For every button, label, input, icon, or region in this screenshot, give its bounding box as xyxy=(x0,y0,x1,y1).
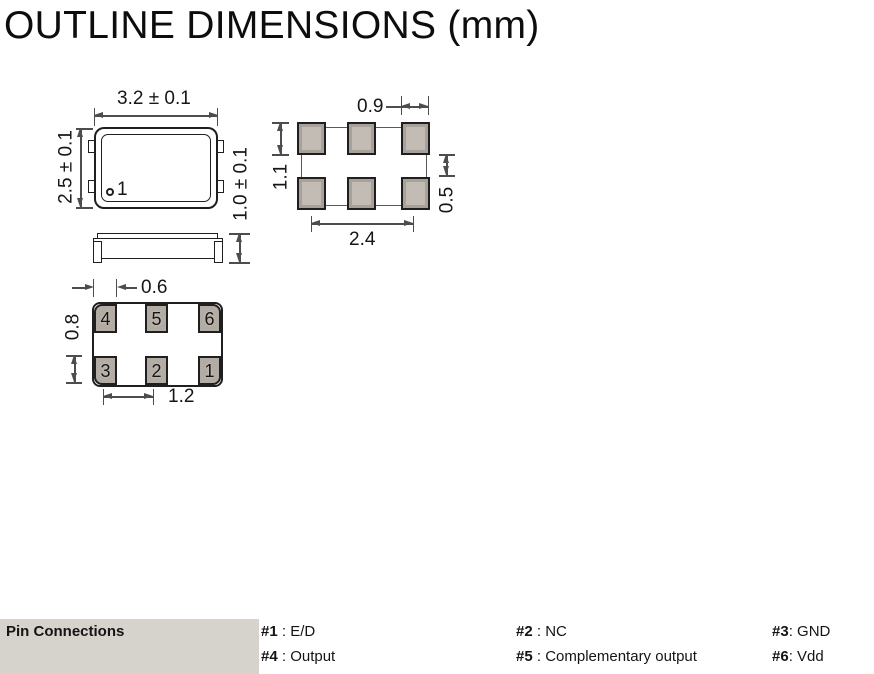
pin-pad-3: 3 xyxy=(94,356,117,385)
pin-function: : Output xyxy=(278,648,336,665)
pin-connections-label: Pin Connections xyxy=(6,623,124,640)
pin-pad-5: 5 xyxy=(145,304,168,333)
datasheet-outline-page: OUTLINE DIMENSIONS (mm) 1 3.2 ± 0.1 xyxy=(0,0,874,674)
side-view-body xyxy=(93,238,223,259)
page-title: OUTLINE DIMENSIONS (mm) xyxy=(4,4,540,48)
land-pad xyxy=(347,122,376,155)
pin-number: #4 xyxy=(261,648,278,665)
side-view-terminal xyxy=(93,241,102,263)
side-view-terminal xyxy=(214,241,223,263)
pin-function: : E/D xyxy=(278,623,316,640)
pin-number: #6 xyxy=(772,648,789,665)
land-pad xyxy=(347,177,376,210)
pin-function: : Vdd xyxy=(789,648,824,665)
pin-number: #3 xyxy=(772,623,789,640)
pin-function: : GND xyxy=(789,623,831,640)
pin-connection-entry-4: #4 : Output xyxy=(261,648,335,665)
dim-land-pad-width-label: 0.9 xyxy=(357,97,383,116)
pin-function: : NC xyxy=(533,623,567,640)
dim-body-width-label: 3.2 ± 0.1 xyxy=(117,89,191,108)
pin-pad-4: 4 xyxy=(94,304,117,333)
land-pad xyxy=(297,122,326,155)
dim-body-height-label: 2.5 ± 0.1 xyxy=(57,130,76,204)
dim-bottom-pad-height-label: 0.8 xyxy=(64,314,83,340)
dim-bottom-pad-pitch-label: 1.2 xyxy=(168,387,194,406)
land-pad xyxy=(401,177,430,210)
pin-function: : Complementary output xyxy=(533,648,697,665)
pin-connection-entry-3: #3: GND xyxy=(772,623,830,640)
dim-thickness-label: 1.0 ± 0.1 xyxy=(232,147,251,221)
pin-pad-1: 1 xyxy=(198,356,221,385)
dim-land-row-gap-label: 0.5 xyxy=(438,187,457,213)
pin-connection-entry-1: #1 : E/D xyxy=(261,623,315,640)
dim-bottom-pad-width-label: 0.6 xyxy=(141,278,167,297)
pin1-dot-icon xyxy=(106,188,114,196)
land-pad xyxy=(297,177,326,210)
pin-number: #2 xyxy=(516,623,533,640)
pin-connection-entry-2: #2 : NC xyxy=(516,623,567,640)
pin-connection-entry-5: #5 : Complementary output xyxy=(516,648,697,665)
dim-land-pad-height-label: 1.1 xyxy=(272,164,291,190)
dim-land-span-label: 2.4 xyxy=(349,230,375,249)
pin1-marker-label: 1 xyxy=(117,180,128,199)
land-pad xyxy=(401,122,430,155)
pin-number: #5 xyxy=(516,648,533,665)
pin-pad-6: 6 xyxy=(198,304,221,333)
pin-number: #1 xyxy=(261,623,278,640)
pin-connection-entry-6: #6: Vdd xyxy=(772,648,824,665)
pin-pad-2: 2 xyxy=(145,356,168,385)
